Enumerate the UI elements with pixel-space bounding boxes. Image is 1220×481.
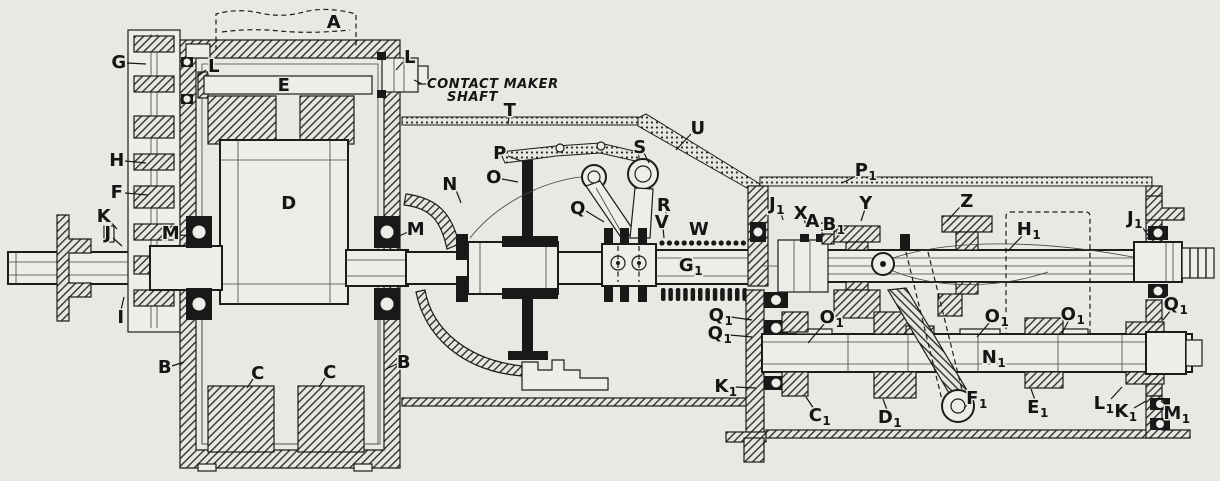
part-label-L1-47: L1: [1094, 393, 1115, 416]
part-label-L-4: L: [404, 47, 416, 68]
leader-line-K1-48: [1134, 401, 1146, 408]
part-label-Q-21: Q: [570, 198, 586, 219]
left-magneto-unit: [8, 9, 428, 471]
part-label-C-12: C: [251, 363, 265, 384]
bell-housing-bottom: [416, 290, 522, 376]
base-plate: [402, 398, 748, 406]
part-label-N-20: N: [442, 174, 458, 195]
part-label-D1-51: D1: [878, 407, 902, 430]
part-label-B1-35: B1: [822, 214, 845, 237]
part-label-K1-30: K1: [714, 376, 737, 399]
part-label-C-13: C: [323, 362, 337, 383]
part-label-C1-50: C1: [809, 405, 832, 428]
end-bearing-block: [1134, 242, 1182, 282]
part-label-D-15: D: [281, 193, 296, 214]
part-label-F1-45: F1: [966, 388, 988, 411]
shaft-collar: [468, 242, 558, 294]
part-label-J-8: J: [102, 223, 111, 244]
part-label-P-18: P: [493, 143, 507, 164]
bearing-c1: [782, 312, 808, 332]
middle-coupling-section: [402, 114, 762, 406]
breaker-cover: [500, 143, 640, 163]
part-label-B-14: B: [397, 352, 411, 373]
part-label-S-22: S: [633, 137, 646, 158]
shaft-coupling-piece: [778, 240, 828, 292]
lower-shaft: [762, 334, 1192, 372]
part-label-Z-37: Z: [960, 191, 974, 212]
collar-e1: [1025, 318, 1063, 334]
part-label-I-10: I: [117, 307, 124, 328]
part-label-L-2: L: [208, 56, 220, 77]
part-label-O1-43: O1: [1061, 304, 1086, 327]
part-label-A-0: A: [327, 12, 341, 33]
pole-shoe-right: [298, 386, 364, 452]
part-label-E-3: E: [278, 75, 291, 96]
contact-maker-shaft-annotation-line2: SHAFT: [447, 90, 499, 105]
part-label-P1-31: P1: [855, 160, 878, 183]
breaker-plate: [522, 160, 533, 236]
part-label-T-16: T: [504, 100, 517, 121]
annotation: CONTACT MAKER SHAFT: [414, 77, 559, 105]
part-label-M-9: M: [162, 223, 180, 244]
part-label-E1-46: E1: [1027, 397, 1049, 420]
part-label-Y-36: Y: [858, 193, 873, 214]
drive-housing-bottom: [766, 430, 1152, 438]
pole-shoe-left: [208, 386, 274, 452]
part-label-J1-32: J1: [767, 194, 785, 217]
part-label-O-19: O: [486, 167, 502, 188]
impulse-coupling: [602, 244, 656, 286]
left-bolt: [186, 44, 210, 58]
part-label-M-26: M: [407, 219, 425, 240]
drive-housing-top-cover: [760, 177, 1152, 186]
leader-line-O-19: [502, 179, 518, 182]
part-label-K1-48: K1: [1114, 401, 1137, 424]
coupling-sleeve: [656, 250, 762, 284]
top-cover-plate: [402, 117, 640, 125]
part-label-F-6: F: [111, 182, 124, 203]
part-label-H1-38: H1: [1017, 219, 1041, 242]
part-label-Q1-40: Q1: [1164, 294, 1189, 317]
part-label-M1-49: M1: [1163, 403, 1190, 426]
part-label-W-25: W: [689, 219, 709, 240]
part-label-B-11: B: [158, 357, 172, 378]
cross-section-diagram: CONTACT MAKER SHAFT AGLELHFKJMIBCCBDTUPO…: [0, 0, 1220, 481]
part-label-J1-39: J1: [1125, 208, 1143, 231]
leader-line-L1-47: [1111, 387, 1122, 399]
part-label-H-5: H: [109, 150, 125, 171]
part-label-G-1: G: [111, 52, 126, 73]
part-label-U-17: U: [690, 118, 705, 139]
bell-crank-lever: [586, 181, 636, 236]
armature-block: [220, 140, 348, 304]
figure-canvas: CONTACT MAKER SHAFT AGLELHFKJMIBCCBDTUPO…: [0, 0, 1220, 481]
leader-line-Q-21: [586, 211, 604, 222]
part-label-V-24: V: [655, 212, 669, 233]
